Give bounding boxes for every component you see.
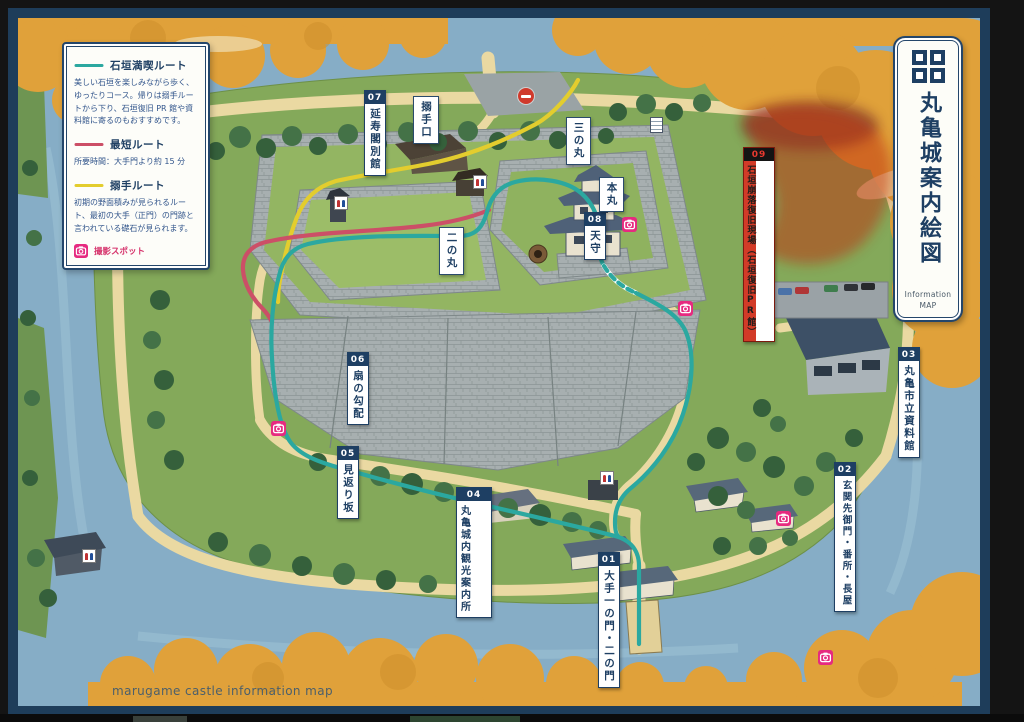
marker-07-enjukaku: 07 延寿閣別館 — [364, 90, 386, 176]
restroom-icon — [473, 175, 487, 189]
map-title: 丸亀城案内絵図 — [917, 91, 939, 266]
photo-spot-label: 撮影スポット — [94, 245, 145, 257]
restroom-icon — [82, 549, 96, 563]
route-description: 美しい石垣を楽しみながら歩く、ゆったりコース。帰りは搦手ルートから下り、石垣復旧… — [74, 77, 198, 128]
label-karamete-guchi: 搦手口 — [413, 96, 439, 144]
label-ninomaru: 二の丸 — [439, 227, 464, 275]
camera-icon — [818, 650, 833, 665]
marker-04-info-center: 04 丸亀城内 観光案内所 — [456, 487, 492, 618]
camera-icon — [271, 421, 286, 436]
camera-icon — [622, 217, 637, 232]
marker-label: 玄関先御門・番所・長屋 — [840, 480, 851, 607]
route-swatch-yellow — [74, 183, 104, 188]
route-name: 石垣満喫ルート — [110, 58, 187, 73]
marker-03-museum: 03 丸亀市立資料館 — [898, 347, 920, 458]
legend-photo-spot: 撮影スポット — [74, 244, 198, 258]
label-honmaru: 本丸 — [599, 177, 624, 212]
marker-label: 見返り坂 — [342, 464, 354, 514]
map-caption: marugame castle information map — [112, 684, 333, 698]
camera-icon — [776, 511, 791, 526]
marker-label: 天守 — [589, 230, 601, 255]
marker-label: 延寿閣別館 — [369, 108, 381, 171]
marker-label: 丸亀市立資料館 — [903, 365, 915, 453]
marker-number: 09 — [744, 148, 774, 161]
route-description: 初期の野面積みが見られるルート、最初の大手（正門）の門跡と言われている礎石が見ら… — [74, 197, 198, 235]
marker-08-tenshu: 08 天守 — [584, 212, 606, 260]
route-name: 搦手ルート — [110, 178, 165, 193]
restroom-icon — [334, 196, 348, 210]
marker-09-ishigaki-restoration: 09 石垣崩落復旧現場 （石垣復旧PR館） — [743, 147, 775, 342]
marker-label: （石垣復旧PR館） — [745, 245, 755, 337]
marker-label: 扇の勾配 — [352, 370, 364, 420]
camera-icon — [678, 301, 693, 316]
marker-number: 06 — [348, 353, 368, 366]
marker-number: 05 — [338, 447, 358, 460]
marker-label: 丸亀城内 — [458, 505, 470, 553]
legend-route-ishigaki: 石垣満喫ルート — [74, 58, 198, 73]
marker-number: 08 — [585, 213, 605, 226]
marker-01-ote-gates: 01 大手一の門・二の門 — [598, 552, 620, 688]
camera-icon — [74, 244, 88, 258]
page: { "page": { "caption": "marugame castle … — [0, 0, 1024, 722]
restroom-icon — [600, 471, 614, 485]
parking-lot — [772, 282, 888, 318]
marker-number: 02 — [835, 463, 855, 476]
title-banner: 丸亀城案内絵図 Information MAP — [893, 36, 963, 322]
next-image-sliver — [0, 714, 1024, 722]
route-legend: 石垣満喫ルート 美しい石垣を楽しみながら歩く、ゆったりコース。帰りは搦手ルートか… — [62, 42, 210, 270]
legend-route-karamete: 搦手ルート — [74, 178, 198, 193]
marker-number: 04 — [457, 488, 491, 501]
label-sannomaru: 三の丸 — [566, 117, 591, 165]
legend-route-shortest: 最短ルート — [74, 137, 198, 152]
route-swatch-red — [74, 142, 104, 147]
marker-label: 大手一の門・二の門 — [603, 570, 615, 683]
route-name: 最短ルート — [110, 137, 165, 152]
marker-label: 石垣崩落復旧現場 — [745, 165, 755, 245]
marker-label: 観光案内所 — [458, 553, 470, 613]
marker-number: 03 — [899, 348, 919, 361]
marugame-crest-icon — [912, 50, 945, 83]
signboard-icon — [650, 117, 663, 133]
route-description: 所要時間：大手門より約 15 分 — [74, 156, 198, 169]
red-circle-icon — [518, 88, 534, 104]
marker-number: 01 — [599, 553, 619, 566]
route-swatch-teal — [74, 63, 104, 68]
map-subtitle: Information MAP — [895, 290, 961, 311]
marker-05-mikaerizaka: 05 見返り坂 — [337, 446, 359, 519]
marker-02-genkansaki: 02 玄関先御門・番所・長屋 — [834, 462, 856, 612]
marker-06-ogi-no-kobai: 06 扇の勾配 — [347, 352, 369, 425]
marker-number: 07 — [365, 91, 385, 104]
